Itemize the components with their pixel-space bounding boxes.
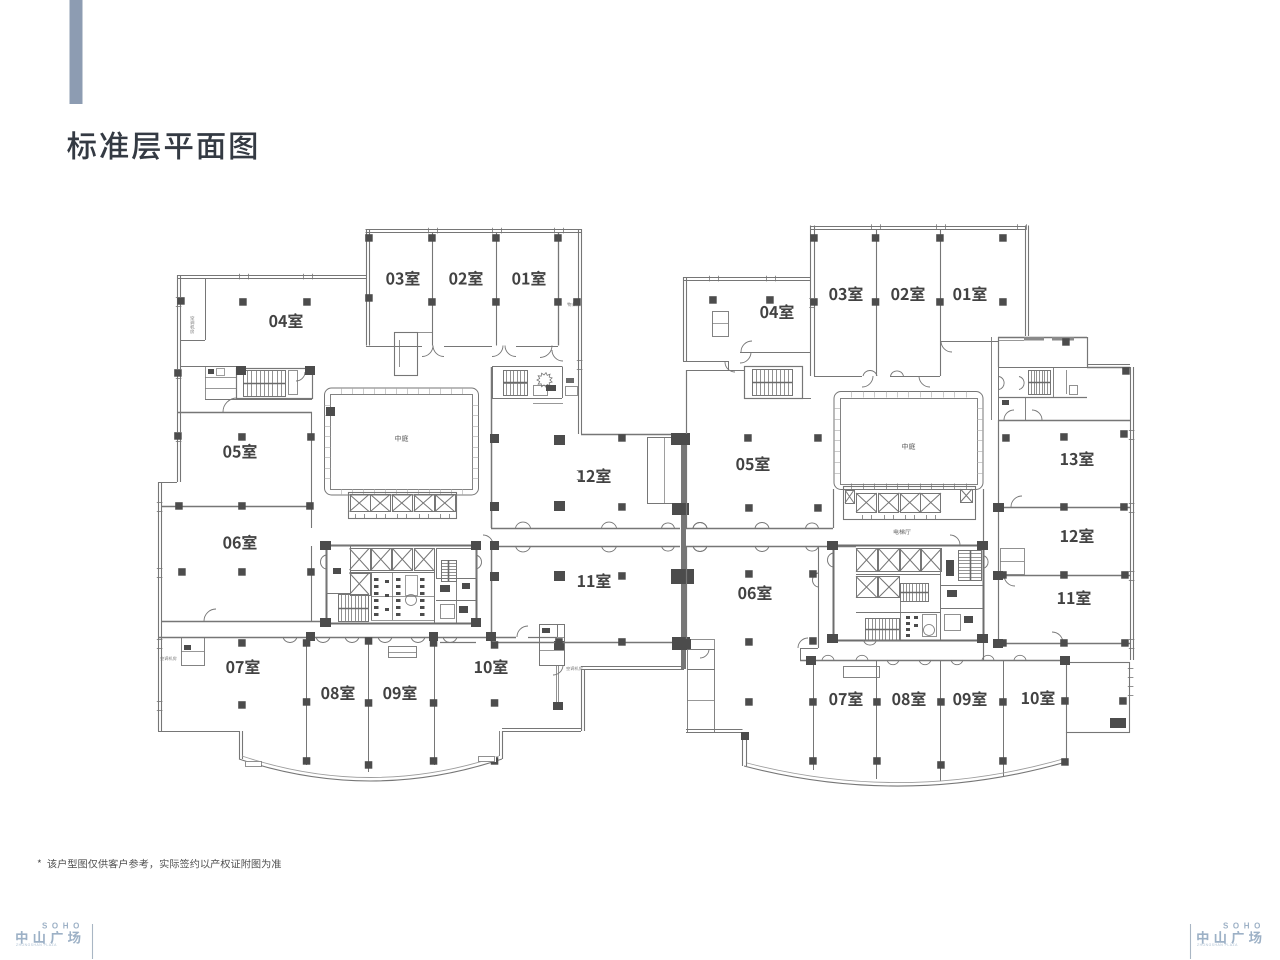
- svg-text:ZHONGSHAN PLAZA: ZHONGSHAN PLAZA: [16, 943, 57, 947]
- svg-text:SOHO: SOHO: [42, 922, 84, 931]
- svg-text:ZHONGSHAN PLAZA: ZHONGSHAN PLAZA: [1197, 943, 1238, 947]
- svg-text:SOHO: SOHO: [1223, 922, 1265, 931]
